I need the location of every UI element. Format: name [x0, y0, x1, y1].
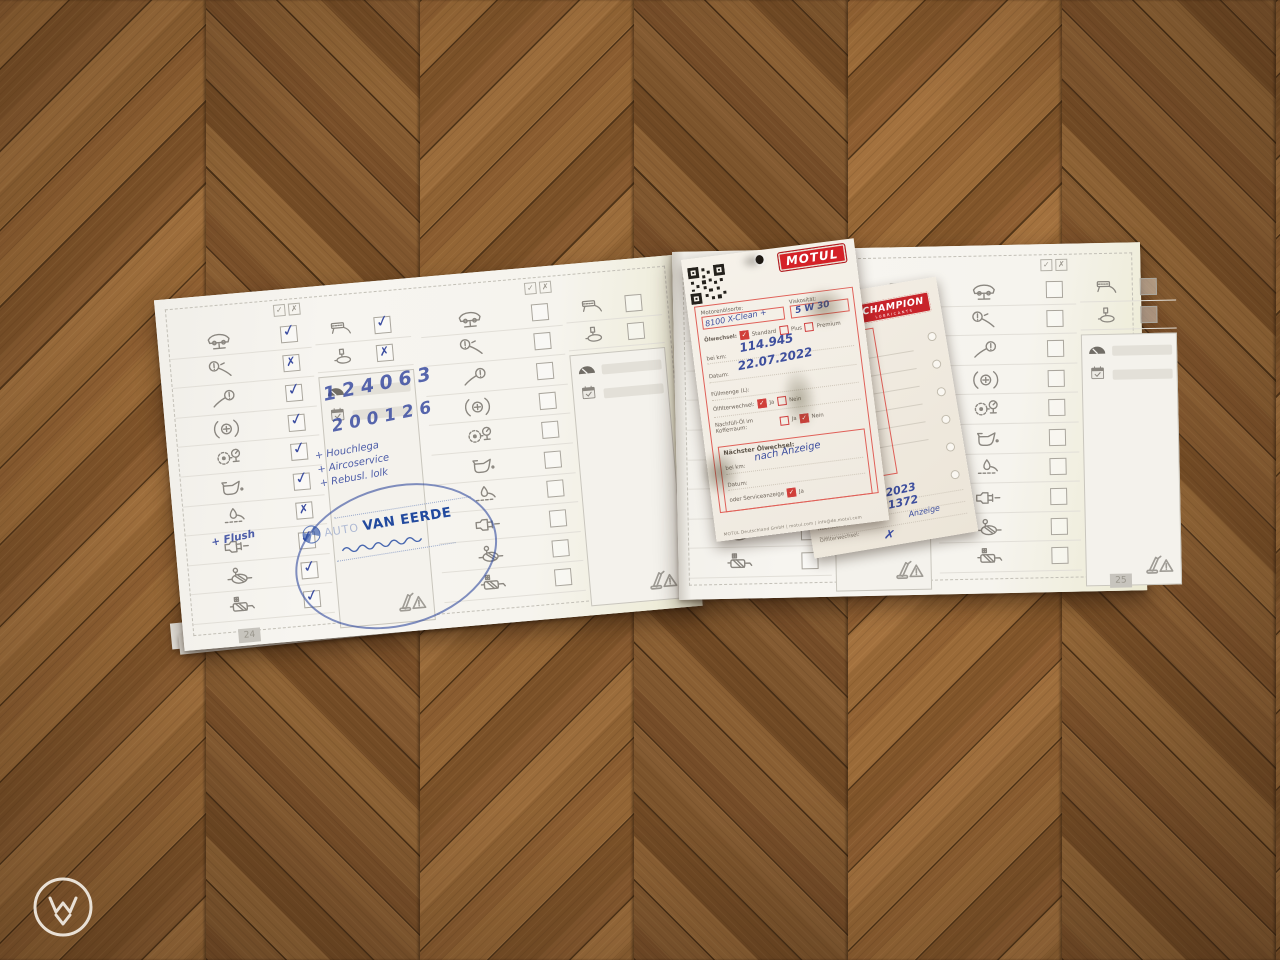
fill-qty-label: Füllmenge (L):: [711, 388, 750, 399]
checkbox: [1051, 517, 1068, 534]
rear-brake-icon: [173, 383, 275, 415]
qr-code: [687, 264, 728, 305]
motul-oil-change-card: MOTUL Motorenölsorte: 8100 X-Clean + Vis…: [681, 238, 889, 542]
oil-can-icon: [181, 472, 283, 504]
service-yes-label: Ja: [799, 488, 805, 495]
checkbox: [541, 421, 559, 439]
legend-check-icon: ✓: [1040, 259, 1052, 271]
front-brake-icon: [422, 332, 524, 364]
checkbox: [1048, 369, 1065, 386]
page-number: 25: [1110, 573, 1132, 587]
checkbox: [1140, 306, 1157, 323]
motul-form: Motorenölsorte: 8100 X-Clean + Viskositä…: [694, 287, 879, 513]
checkbox: [533, 332, 551, 350]
checkbox: [1050, 488, 1067, 505]
date-label: Datum:: [709, 372, 730, 380]
date-field: [1113, 369, 1173, 380]
checkbox: [538, 391, 556, 409]
rear-muffler-icon: [689, 550, 789, 575]
front-muffler-icon: [189, 560, 291, 592]
filter-row: [1080, 300, 1177, 330]
calendar-icon: [1086, 364, 1108, 386]
checklist-row: [934, 275, 1077, 308]
checkbox: [531, 303, 549, 321]
stamp-dealer-name: VAN EERDE: [362, 504, 453, 534]
date-field: [603, 383, 664, 398]
speedometer-icon: [575, 359, 599, 383]
premium-label: Premium: [816, 320, 841, 329]
legend-cross-icon: ✗: [288, 303, 301, 316]
plus-label: Plus: [791, 325, 803, 332]
checkbox: [1047, 340, 1064, 357]
pen-cross-mark: ✗: [883, 527, 896, 543]
checkbox: ✗: [295, 502, 313, 520]
checkbox: [627, 322, 645, 340]
floor-column: [1276, 0, 1280, 960]
booklet-left-page: ✓ ✗ ✓ ✗: [154, 255, 703, 651]
checkbox: [1049, 429, 1066, 446]
checkbox: ✗: [282, 354, 300, 372]
notes-panel: [1081, 332, 1182, 586]
calendar-icon: [577, 383, 601, 407]
filter-no-checkbox: [777, 396, 787, 406]
legend-check-icon: ✓: [273, 304, 286, 317]
checkbox: ✗: [376, 344, 394, 362]
jack-triangle-icon: [643, 560, 682, 597]
filter-yes-label: Ja: [769, 399, 775, 406]
car-on-lift-icon: [168, 324, 270, 356]
rear-brake-icon: [424, 361, 526, 393]
photographer-watermark-icon: [30, 874, 96, 940]
checkbox: [1049, 458, 1066, 475]
punch-hole: [755, 255, 764, 265]
champion-logo: CHAMPION LUBRICANTS: [855, 291, 932, 324]
tire-pressure-icon: [178, 442, 280, 474]
checkbox: [624, 294, 642, 312]
checkbox: [554, 568, 572, 586]
photo-service-booklet-on-parquet: { "glyphs": {"check": "✓", "cross": "✗"}…: [0, 0, 1280, 960]
km-field: [601, 359, 662, 374]
notes-panel: [569, 347, 687, 606]
refill-no-checkbox: ✓: [799, 413, 809, 423]
checklist-row: [689, 546, 832, 579]
refill-oil-label: Nachfüll-Öl im Kofferraum:: [715, 416, 778, 436]
checkbox: [544, 450, 562, 468]
air-filter-icon: [313, 316, 367, 341]
rear-brake-icon: [935, 337, 1035, 362]
filter-no-label: Nein: [789, 396, 802, 403]
legend-cross-icon: ✗: [1055, 259, 1067, 271]
refill-yes-label: Ja: [792, 416, 798, 423]
underbody-lube-icon: [183, 501, 285, 533]
fuel-filter-icon: [1080, 304, 1132, 326]
jack-triangle-icon: [1140, 546, 1177, 581]
front-brake-icon: [934, 308, 1034, 333]
service-yes-checkbox: ✓: [786, 487, 796, 497]
filter-row: [1080, 272, 1177, 302]
fuel-filter-icon: [316, 344, 370, 369]
checkbox: [1140, 278, 1157, 295]
checkbox: [1048, 399, 1065, 416]
fuel-filter-icon: [567, 322, 621, 347]
car-on-lift-icon: [934, 278, 1034, 303]
checkbox: ✓: [290, 443, 308, 461]
front-brake-icon: [170, 354, 272, 386]
checkbox: ✓: [373, 316, 391, 334]
checkbox: [551, 539, 569, 557]
tire-pressure-icon: [429, 420, 531, 452]
dealer-logo-icon: [301, 524, 322, 545]
refill-yes-checkbox: [779, 416, 789, 426]
next-oil-change-section: Nächster Ölwechsel: bei km: nach Anzeige…: [718, 428, 873, 512]
rear-muffler-icon: [191, 590, 293, 622]
checklist-row: [935, 363, 1078, 396]
or-service-label: oder Serviceanzeige: [729, 490, 784, 503]
jack-triangle-icon: [890, 551, 927, 586]
rear-muffler-icon: [939, 545, 1039, 570]
checkbox: [1046, 281, 1063, 298]
next-date-label: Datum:: [727, 480, 748, 488]
speedometer-icon: [1086, 340, 1108, 362]
checkbox: ✓: [280, 325, 298, 343]
legend-check-icon: ✓: [524, 282, 537, 295]
checkbox: [1046, 310, 1063, 327]
parking-brake-icon: [427, 391, 529, 423]
stamp-prefix: AUTO: [323, 521, 360, 539]
premium-checkbox: [804, 322, 814, 332]
next-km-label: bei km:: [725, 464, 746, 472]
checkbox: ✓: [293, 472, 311, 490]
checkbox: ✓: [285, 384, 303, 402]
filter-yes-checkbox: ✓: [757, 399, 767, 409]
checklist-row: [935, 334, 1078, 367]
oil-can-icon: [432, 450, 534, 482]
filter-change-label: Ölfilterwechsel:: [713, 402, 755, 413]
car-on-lift-icon: [419, 302, 521, 334]
refill-no-label: Nein: [811, 413, 824, 420]
checkbox: [546, 480, 564, 498]
km-label: bei km:: [706, 354, 727, 362]
checkbox: [1051, 547, 1068, 564]
oil-change-label: Ölwechsel:: [704, 333, 737, 343]
notes-column: [1079, 256, 1182, 576]
checklist-row: [939, 541, 1082, 574]
checklist-row: [934, 304, 1077, 337]
checkbox: [549, 509, 567, 527]
km-field: [1112, 345, 1172, 356]
air-filter-icon: [564, 294, 618, 319]
air-filter-icon: [1080, 276, 1132, 298]
motul-logo: MOTUL: [777, 243, 848, 273]
checkbox: ✓: [287, 413, 305, 431]
page-number: 24: [238, 627, 261, 643]
checkbox: [536, 362, 554, 380]
parking-brake-icon: [176, 413, 278, 445]
legend-cross-icon: ✗: [539, 281, 552, 294]
